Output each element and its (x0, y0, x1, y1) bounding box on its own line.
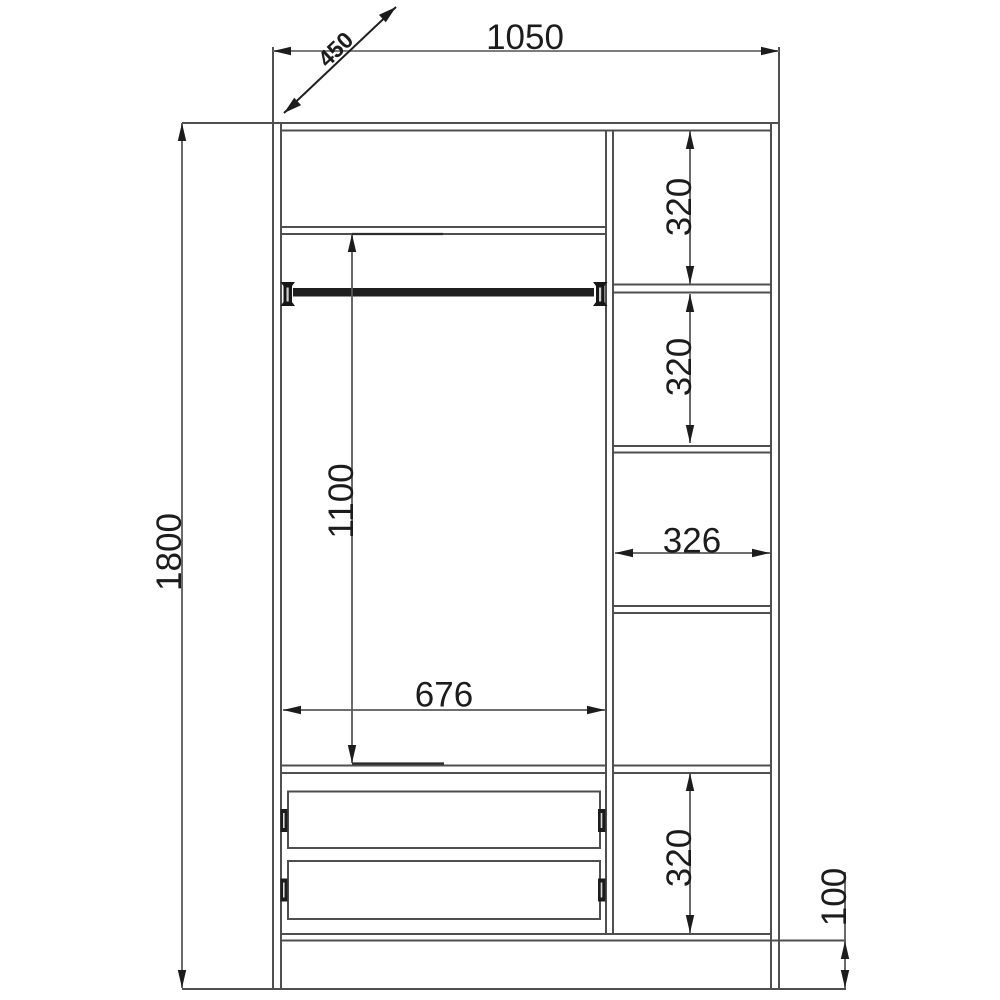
svg-text:450: 450 (313, 27, 359, 72)
svg-text:320: 320 (660, 178, 699, 236)
svg-text:326: 326 (663, 522, 721, 561)
svg-text:676: 676 (415, 676, 473, 715)
svg-text:1100: 1100 (322, 463, 361, 538)
svg-text:100: 100 (815, 868, 854, 926)
svg-text:320: 320 (660, 829, 699, 887)
svg-text:1800: 1800 (150, 513, 189, 591)
svg-text:1050: 1050 (486, 18, 564, 57)
svg-text:320: 320 (660, 338, 699, 396)
